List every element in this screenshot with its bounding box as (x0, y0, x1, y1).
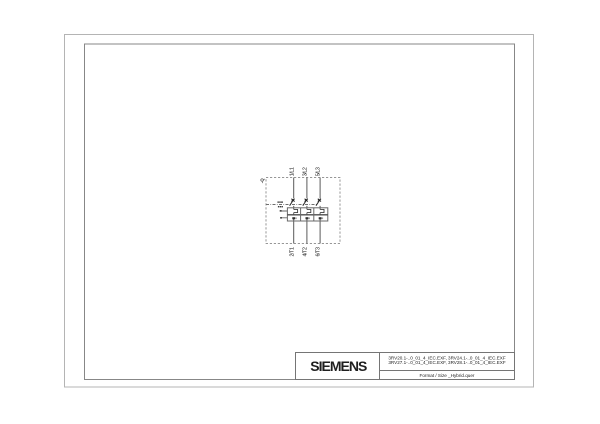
svg-text:Format / Size _Hybrid.quer: Format / Size _Hybrid.quer (420, 373, 475, 378)
svg-text:2/T1: 2/T1 (289, 247, 295, 256)
svg-text:1/L1: 1/L1 (289, 167, 295, 176)
svg-text:4/T2: 4/T2 (303, 247, 309, 256)
svg-text:3/L2: 3/L2 (303, 167, 309, 176)
svg-text:5/L3: 5/L3 (316, 167, 322, 176)
svg-text:SIEMENS: SIEMENS (310, 358, 367, 374)
svg-text:-Q: -Q (259, 178, 264, 183)
svg-text:6/T3: 6/T3 (316, 247, 322, 256)
svg-text:3RV27.1-..0_01_4_IEC.EXF, 3RV2: 3RV27.1-..0_01_4_IEC.EXF, 3RV28.1-..0_01… (388, 360, 505, 365)
